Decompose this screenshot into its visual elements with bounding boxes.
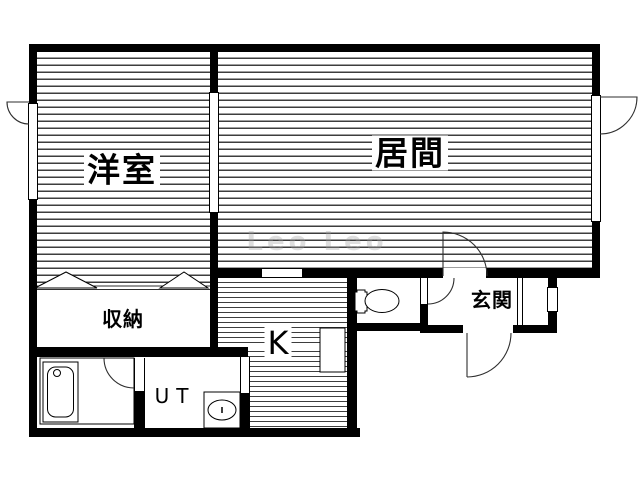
western-room-label: 洋室 [84,153,160,188]
utility-sink [204,392,240,428]
door-swing-bathroom [104,358,134,388]
entrance-label: 玄関 [468,289,516,311]
kitchen-label: K [265,326,292,360]
door-swing-living-exterior [600,97,637,134]
toilet [355,290,399,314]
door-swing-western-exterior [7,102,29,124]
floor-plan: Leo Leo [0,0,640,480]
fixtures-layer [0,0,640,480]
kitchen-counter [320,328,345,372]
living-room-label: 居間 [372,136,448,171]
door-swing-front-door [467,333,511,377]
utility-label: UT [152,385,199,407]
door-swing-toilet [428,278,454,304]
bathtub [43,362,78,422]
storage-label: 収納 [99,308,147,330]
closet-rod-symbol [35,272,210,290]
shoe-closet-divider [518,278,523,325]
door-swing-living-entrance [443,232,487,276]
